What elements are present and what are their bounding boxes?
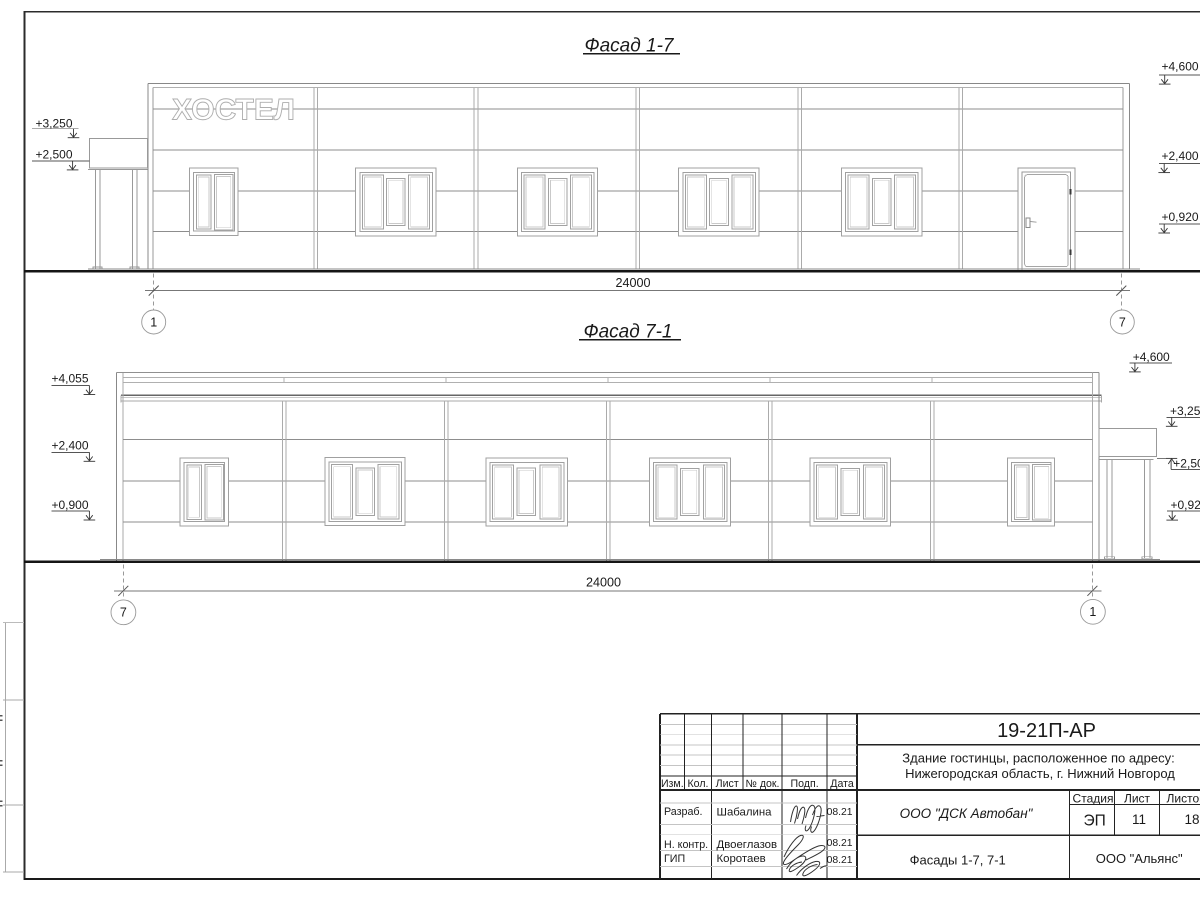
svg-text:Лист: Лист xyxy=(716,778,739,790)
svg-text:Стадия: Стадия xyxy=(1073,791,1114,805)
svg-text:+4,600: +4,600 xyxy=(1162,59,1199,73)
svg-text:1: 1 xyxy=(150,315,157,329)
svg-text:08.21: 08.21 xyxy=(827,838,853,849)
svg-text:ООО "ДСК Автобан": ООО "ДСК Автобан" xyxy=(900,806,1034,821)
svg-text:+2,400: +2,400 xyxy=(51,439,88,453)
svg-text:Н. контр.: Н. контр. xyxy=(664,839,708,851)
svg-text:Подп.: Подп. xyxy=(791,778,819,790)
svg-text:Листов: Листов xyxy=(1167,791,1200,805)
svg-text:ХОСТЕЛ: ХОСТЕЛ xyxy=(172,94,295,127)
svg-text:Фасады 1-7, 7-1: Фасады 1-7, 7-1 xyxy=(910,853,1006,868)
svg-text:08.21: 08.21 xyxy=(827,807,853,818)
svg-text:Изм.: Изм. xyxy=(661,778,684,790)
svg-text:+0,920: +0,920 xyxy=(1171,498,1200,512)
svg-text:+3,250: +3,250 xyxy=(35,116,72,130)
svg-text:+4,055: +4,055 xyxy=(51,371,88,385)
svg-text:+2,500: +2,500 xyxy=(35,147,72,161)
svg-text:Кол.: Кол. xyxy=(688,778,709,790)
svg-text:+2,500: +2,500 xyxy=(1173,456,1200,470)
svg-text:+4,600: +4,600 xyxy=(1133,350,1170,364)
svg-text:Нижегородская область, г. Нижн: Нижегородская область, г. Нижний Новгоро… xyxy=(905,766,1175,781)
svg-text:+0,920: +0,920 xyxy=(1162,210,1199,224)
svg-text:+2,400: +2,400 xyxy=(1162,149,1199,163)
svg-text:№ док.: № док. xyxy=(746,778,780,790)
svg-text:11: 11 xyxy=(1132,812,1146,827)
svg-text:Разраб.: Разраб. xyxy=(664,806,702,818)
svg-text:ГИП: ГИП xyxy=(664,853,685,865)
svg-text:+0,900: +0,900 xyxy=(51,498,88,512)
svg-text:08.21: 08.21 xyxy=(827,855,853,866)
svg-text:18: 18 xyxy=(1184,812,1199,827)
svg-text:19-21П-АР: 19-21П-АР xyxy=(997,720,1096,742)
svg-text:Лист: Лист xyxy=(1124,791,1151,805)
svg-text:Коротаев: Коротаев xyxy=(717,853,766,865)
svg-text:Двоеглазов: Двоеглазов xyxy=(717,839,778,851)
svg-text:Дата: Дата xyxy=(830,778,854,790)
svg-text:24000: 24000 xyxy=(586,575,621,589)
svg-text:ЭП: ЭП xyxy=(1083,812,1105,829)
svg-text:7: 7 xyxy=(1119,315,1126,329)
svg-text:Шабалина: Шабалина xyxy=(717,807,773,819)
svg-text:24000: 24000 xyxy=(615,276,650,290)
svg-text:ООО "Альянс": ООО "Альянс" xyxy=(1096,851,1183,866)
svg-text:7: 7 xyxy=(120,606,127,620)
svg-text:Здание гостинцы, расположенное: Здание гостинцы, расположенное по адресу… xyxy=(902,750,1174,765)
svg-text:+3,250: +3,250 xyxy=(1170,404,1200,418)
svg-text:1: 1 xyxy=(1089,605,1096,619)
